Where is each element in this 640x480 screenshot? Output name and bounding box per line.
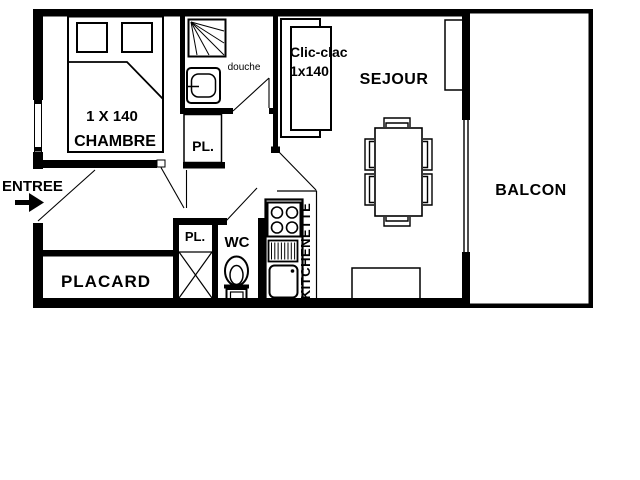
- wall-bottom: [33, 298, 470, 308]
- wall-pl-wc-divider: [212, 218, 218, 308]
- placard-label: PLACARD: [61, 272, 151, 291]
- pl-bottom-label: PL.: [185, 229, 205, 244]
- sofa-label-line2: 1x140: [290, 63, 329, 79]
- sofa-label-line1: Clic-clac: [290, 44, 348, 60]
- wall-douche-door-jamb: [269, 108, 273, 114]
- wall-sejour-balcon-lower: [462, 252, 470, 308]
- chair-left-1: [365, 139, 374, 170]
- sideboard: [352, 268, 420, 299]
- wall-wc-kitchenette: [258, 218, 265, 308]
- chair-left-2: [365, 174, 374, 205]
- wall-pl-wc-top: [179, 218, 227, 225]
- wall-pl-top-bottom: [183, 162, 225, 169]
- window-tick: [35, 100, 42, 104]
- door-jamb-notch: [157, 160, 165, 167]
- pl-top-label: PL.: [192, 138, 214, 154]
- chair-top: [384, 118, 410, 127]
- wall-sejour-balcon-upper: [462, 9, 470, 120]
- wall-left-lower: [33, 223, 43, 308]
- toilet-seat-bar: [224, 285, 249, 289]
- bed: [68, 17, 163, 153]
- floor-plan-page: ENTREE 1 X 140 CHAMBRE douche PL. PL. WC…: [0, 0, 640, 480]
- radiator: [445, 20, 463, 90]
- entree-label: ENTREE: [2, 178, 63, 195]
- wall-douche-bottom: [180, 108, 233, 114]
- wall-balcon-top: [470, 9, 593, 14]
- balcony-door: [464, 120, 468, 252]
- wall-hall-sejour-cap: [271, 147, 280, 154]
- wall-placard-pl: [173, 218, 179, 308]
- bed-size-label: 1 X 140: [86, 108, 138, 125]
- floor-plan: ENTREE 1 X 140 CHAMBRE douche PL. PL. WC…: [0, 0, 640, 480]
- chair-right-2: [423, 174, 432, 205]
- wall-chambre-bottom: [33, 160, 157, 168]
- window-left: [35, 100, 42, 152]
- wall-top: [33, 9, 470, 17]
- chambre-label: CHAMBRE: [74, 133, 156, 150]
- door-swing-sejour: [279, 152, 316, 190]
- window-frame: [35, 100, 42, 152]
- dining-table-set: [365, 118, 432, 226]
- balcon-label: BALCON: [495, 182, 566, 199]
- kitchenette-label: KITCHENETTE: [298, 203, 313, 300]
- douche-label: douche: [228, 62, 261, 73]
- toilet-bowl: [225, 257, 248, 286]
- sejour-label: SEJOUR: [360, 71, 429, 88]
- wall-placard-top: [33, 250, 179, 257]
- wc-label: WC: [225, 234, 250, 251]
- wall-balcon-right: [589, 9, 594, 308]
- door-swing-douche: [233, 78, 269, 111]
- closet-cross: [179, 252, 212, 298]
- entrance-arrow-icon: [15, 193, 44, 212]
- dining-table: [375, 128, 422, 216]
- chair-right-1: [423, 139, 432, 170]
- window-tick: [35, 147, 42, 151]
- arrow-head: [29, 193, 44, 212]
- wall-chambre-douche: [180, 17, 185, 114]
- toilet-icon: [224, 257, 249, 303]
- door-swing-wc: [226, 188, 257, 221]
- chair-bottom: [384, 217, 410, 226]
- arrow-shaft: [15, 200, 30, 205]
- shower-icon: [189, 20, 226, 57]
- wall-left-upper: [33, 9, 43, 100]
- door-swing-chambre: [161, 168, 184, 209]
- washbasin-icon: [187, 68, 220, 103]
- sink-faucet: [291, 269, 295, 273]
- wall-hall-sejour: [273, 17, 278, 147]
- wall-balcon-bottom: [470, 304, 593, 309]
